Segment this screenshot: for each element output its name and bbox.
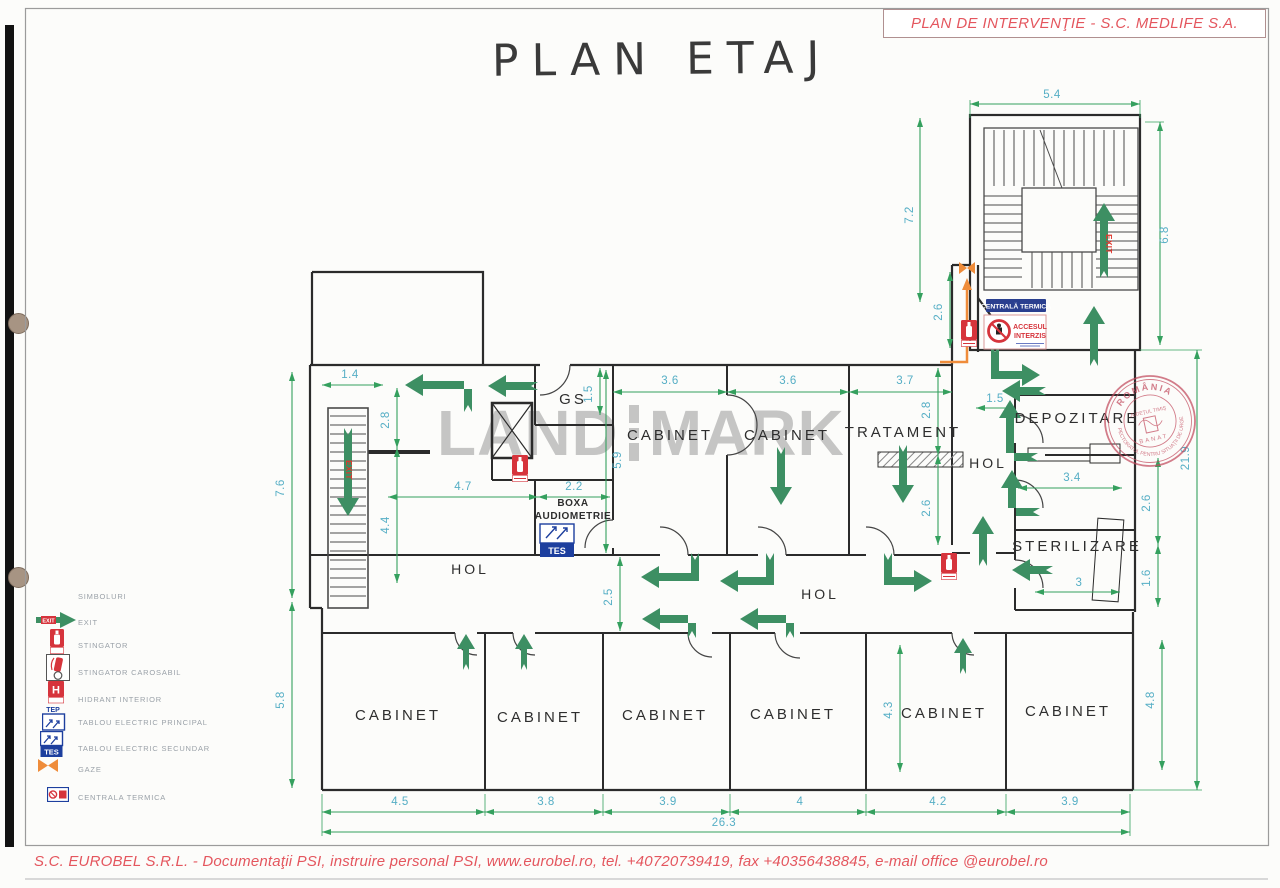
footer-contact-line: S.C. EUROBEL S.R.L. - Documentaţii PSI, …	[34, 853, 1048, 870]
dim-label: 7.2	[904, 206, 916, 224]
evacuation-arrow	[991, 345, 1040, 386]
evacuation-arrow	[1012, 559, 1053, 581]
room-label-cabinet: CABINET	[622, 707, 708, 724]
dim-label: 4.8	[1145, 691, 1157, 709]
dim-label: 4.7	[454, 481, 472, 493]
dim-label: 3.6	[779, 375, 797, 387]
room-label-depozitare: DEPOZITARE	[1015, 410, 1140, 427]
floor-plan-canvas: 5.4 7.2 6.8 2.6 1.4 2.8 1.5 3.6 3.6 3.7 …	[0, 0, 1280, 888]
interzis-label: INTERZIS	[1014, 333, 1046, 340]
evacuation-arrow	[884, 553, 932, 592]
dim-label: 4.3	[883, 701, 895, 719]
dim-label: 2.5	[603, 588, 615, 606]
dim-label: 1.5	[986, 393, 1004, 405]
legend-tes-icon: TES	[40, 731, 64, 758]
accesul-interzis-sign: ACCESUL INTERZIS	[984, 315, 1048, 349]
room-label-cabinet: CABINET	[497, 709, 583, 726]
legend-extinguisher-icon	[50, 629, 64, 655]
evacuation-arrow	[1083, 306, 1105, 366]
dim-label: 3.6	[661, 375, 679, 387]
dim-label: 3.8	[537, 796, 555, 808]
room-label-cabinet: CABINET	[744, 427, 830, 444]
evacuation-arrow	[770, 447, 792, 505]
dim-label: 3.9	[1061, 796, 1079, 808]
evacuation-arrow	[488, 375, 538, 397]
room-label-boxa: AUDIOMETRIE	[535, 511, 612, 522]
legend-wheeled-extinguisher-icon	[46, 654, 70, 683]
room-label-cabinet: CABINET	[1025, 703, 1111, 720]
exit-label: EXIT	[344, 460, 353, 480]
dim-label: 2.8	[921, 401, 933, 419]
extinguisher-icon	[961, 320, 977, 347]
evacuation-arrows	[405, 306, 1105, 674]
legend-title: SIMBOLURI	[78, 592, 126, 601]
legend-tes-letters: TES	[44, 748, 59, 757]
room-label-boxa: BOXA	[557, 498, 588, 509]
evacuation-arrow	[457, 634, 475, 670]
evacuation-arrow	[972, 516, 994, 566]
dim-label: 3.7	[896, 375, 914, 387]
dim-label: 1.4	[341, 369, 359, 381]
dim-label: 4.4	[380, 516, 392, 534]
dim-label: 4.5	[391, 796, 409, 808]
scanned-plan-page: LAND MARK PLAN DE INTERVENŢIE - S.C. MED…	[0, 0, 1280, 888]
dim-label: 3.4	[1063, 472, 1081, 484]
legend-exit-arrow-icon: EXIT	[34, 611, 78, 629]
exit-arrow-left-stair: EXIT	[337, 428, 359, 516]
legend-hydrant-icon: H	[48, 681, 64, 704]
legend-item-label: CENTRALA TERMICA	[78, 793, 166, 802]
extinguisher-icon	[941, 553, 957, 580]
legend-item-label: STINGATOR CAROSABIL	[78, 668, 181, 677]
room-label-cabinet: CABINET	[355, 707, 441, 724]
centrala-termica-label: CENTRALĂ TERMICĂ	[981, 302, 1051, 311]
legend-item-label: TABLOU ELECTRIC SECUNDAR	[78, 744, 210, 753]
room-label-hol: HOL	[801, 586, 839, 602]
stair-top-right	[984, 128, 1138, 290]
room-label-cabinet: CABINET	[750, 706, 836, 723]
room-label-cabinet: CABINET	[901, 705, 987, 722]
dim-label: 2.2	[565, 481, 583, 493]
legend-centrala-termica-icon	[47, 787, 69, 802]
legend-item-label: EXIT	[78, 618, 98, 627]
dim-label: 5.8	[275, 691, 287, 709]
evacuation-arrow	[1001, 470, 1040, 516]
dim-label: 3	[1076, 577, 1083, 589]
dim-label: 2.6	[921, 499, 933, 517]
dim-label: 2.6	[933, 303, 945, 321]
dim-label: 5.4	[1043, 89, 1061, 101]
legend-item-label: STINGATOR	[78, 641, 128, 650]
evacuation-arrow	[405, 374, 472, 412]
legend-item-label: GAZE	[78, 765, 102, 774]
evacuation-arrow	[641, 553, 699, 588]
tes-panel-icon: TES	[540, 524, 574, 557]
extinguisher-icon	[512, 455, 528, 482]
dimension-lines	[292, 100, 1202, 836]
exit-label: EXIT	[1104, 234, 1113, 254]
evacuation-arrow	[515, 634, 533, 670]
legend-hydrant-letter: H	[52, 685, 60, 697]
dim-label: 3.9	[659, 796, 677, 808]
dim-label: 4.2	[929, 796, 947, 808]
room-label-tratament: TRATAMENT	[845, 424, 961, 441]
dim-label: 4	[797, 796, 804, 808]
room-label-cabinet: CABINET	[627, 427, 713, 444]
legend-tep-icon: TEP	[42, 705, 66, 731]
dim-label: 5.9	[612, 451, 624, 469]
legend-exit-tag: EXIT	[42, 618, 55, 624]
tes-label: TES	[548, 546, 566, 556]
room-labels: GS CABINET CABINET TRATAMENT HOL DEPOZIT…	[355, 391, 1142, 726]
evacuation-arrow	[954, 638, 972, 674]
dim-label: 2.8	[380, 411, 392, 429]
dim-label: 7.6	[275, 479, 287, 497]
legend-item-label: TABLOU ELECTRIC PRINCIPAL	[78, 718, 208, 727]
dim-label: 2.6	[1141, 494, 1153, 512]
legend-gas-valve-icon	[37, 758, 59, 773]
dim-label: 1.6	[1141, 569, 1153, 587]
room-label-hol: HOL	[451, 561, 489, 577]
room-label-sterilizare: STERILIZARE	[1012, 538, 1142, 555]
room-label-hol: HOL	[969, 455, 1007, 471]
hatched-wall	[878, 452, 963, 467]
legend-item-label: HIDRANT INTERIOR	[78, 695, 162, 704]
accesul-label: ACCESUL	[1013, 324, 1048, 331]
legend-tep-letters: TEP	[46, 707, 60, 714]
evacuation-arrow	[720, 553, 774, 592]
dim-label: 6.8	[1159, 226, 1171, 244]
room-label-gs: GS	[559, 391, 587, 408]
centrala-termica-sign: CENTRALĂ TERMICĂ	[981, 299, 1051, 312]
stamp-name: BANAT	[1139, 434, 1169, 446]
dim-label: 26.3	[712, 817, 736, 829]
